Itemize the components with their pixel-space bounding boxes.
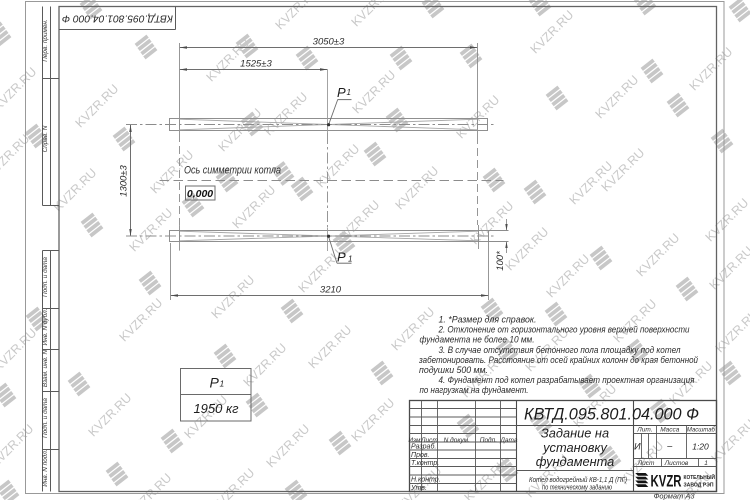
svg-text:100*: 100*: [495, 251, 506, 271]
svg-text:Подп.: Подп.: [480, 436, 497, 444]
svg-text:3. В случае отсутствия бетонно: 3. В случае отсутствия бетонного пола пл…: [439, 345, 681, 355]
svg-text:KVZR.RU: KVZR.RU: [209, 273, 258, 322]
svg-text:KVZR.RU: KVZR.RU: [389, 305, 438, 354]
svg-text:КОТЕЛЬНЫЙ: КОТЕЛЬНЫЙ: [684, 473, 716, 481]
svg-text:KVZR.RU: KVZR.RU: [454, 93, 503, 142]
svg-text:Лист: Лист: [637, 460, 655, 467]
svg-text:KVZR.RU: KVZR.RU: [117, 296, 166, 345]
svg-text:Подп. и дата: Подп. и дата: [41, 398, 49, 438]
svg-text:N докум.: N докум.: [444, 436, 470, 444]
svg-text:KVZR.RU: KVZR.RU: [86, 391, 135, 440]
svg-text:KVZR.RU: KVZR.RU: [349, 0, 398, 29]
svg-text:1300±3: 1300±3: [119, 164, 130, 196]
svg-text:фундамента не более 10 мм.: фундамента не более 10 мм.: [420, 335, 535, 345]
svg-text:1: 1: [348, 255, 352, 264]
svg-text:1: 1: [704, 460, 708, 467]
svg-text:Ось симметрии котла: Ось симметрии котла: [184, 165, 281, 177]
svg-text:KVZR.RU: KVZR.RU: [314, 142, 363, 191]
svg-text:KVZR.RU: KVZR.RU: [241, 341, 290, 390]
svg-text:KVZR.RU: KVZR.RU: [503, 225, 552, 274]
svg-text:KVZR.RU: KVZR.RU: [611, 297, 660, 346]
svg-text:KVZR.RU: KVZR.RU: [126, 471, 175, 500]
svg-text:KVZR.RU: KVZR.RU: [127, 206, 176, 255]
svg-text:KVZR.RU: KVZR.RU: [306, 323, 355, 372]
svg-text:KVZR.RU: KVZR.RU: [0, 326, 39, 375]
svg-text:KVZR.RU: KVZR.RU: [528, 8, 577, 57]
svg-text:KVZR.RU: KVZR.RU: [262, 90, 311, 139]
svg-text:KVZR.RU: KVZR.RU: [713, 307, 750, 356]
svg-text:KVZR.RU: KVZR.RU: [544, 252, 593, 301]
svg-text:ЗАВОД РЭП: ЗАВОД РЭП: [684, 483, 714, 489]
svg-text:1950 кг: 1950 кг: [193, 401, 239, 416]
svg-text:Н.контр.: Н.контр.: [411, 477, 441, 484]
svg-text:Утв.: Утв.: [410, 485, 427, 492]
svg-text:KVZR.RU: KVZR.RU: [709, 417, 750, 466]
svg-text:Разраб.: Разраб.: [411, 443, 436, 451]
svg-text:КВТД.095.801.04.000 Ф: КВТД.095.801.04.000 Ф: [524, 406, 699, 424]
svg-text:Задание на: Задание на: [541, 426, 609, 441]
svg-text:фундамента: фундамента: [536, 454, 615, 469]
svg-text:3210: 3210: [320, 285, 342, 296]
svg-text:KVZR.RU: KVZR.RU: [468, 199, 517, 248]
svg-text:0,000: 0,000: [187, 188, 213, 200]
svg-text:KVZR.RU: KVZR.RU: [0, 65, 39, 114]
svg-text:KVZR.RU: KVZR.RU: [350, 68, 399, 117]
svg-text:по нагрузкам на фундамент.: по нагрузкам на фундамент.: [420, 385, 529, 395]
svg-text:KVZR.RU: KVZR.RU: [393, 164, 442, 213]
svg-text:Дата: Дата: [499, 437, 518, 444]
svg-text:KVZR.RU: KVZR.RU: [273, 0, 322, 32]
svg-text:KVZR.RU: KVZR.RU: [334, 198, 383, 247]
svg-text:KVZR.RU: KVZR.RU: [703, 196, 750, 245]
svg-text:2. Отклонение от горизонтально: 2. Отклонение от горизонтального уровня …: [438, 325, 690, 335]
svg-text:P: P: [337, 250, 346, 265]
svg-text:P: P: [337, 85, 346, 100]
svg-text:КВТД.095.801.04.000 Ф: КВТД.095.801.04.000 Ф: [62, 12, 173, 24]
svg-text:KVZR.RU: KVZR.RU: [264, 422, 313, 471]
svg-text:по техническому заданию: по техническому заданию: [542, 484, 613, 492]
svg-text:KVZR.RU: KVZR.RU: [51, 166, 100, 215]
svg-text:KVZR.RU: KVZR.RU: [209, 466, 258, 500]
svg-text:1: 1: [347, 88, 351, 97]
svg-text:KVZR.RU: KVZR.RU: [707, 244, 750, 293]
svg-text:И: И: [634, 442, 641, 452]
svg-text:1:20: 1:20: [692, 442, 709, 452]
svg-text:Подп. и дата: Подп. и дата: [41, 257, 49, 297]
svg-text:KVZR.RU: KVZR.RU: [73, 82, 122, 131]
svg-text:Справ. N: Справ. N: [42, 125, 49, 152]
svg-text:KVZR.RU: KVZR.RU: [230, 183, 279, 232]
svg-text:1: 1: [220, 379, 225, 389]
svg-text:KVZR.RU: KVZR.RU: [593, 73, 642, 122]
svg-text:Инв. N подл.: Инв. N подл.: [41, 449, 49, 486]
svg-text:Котел водогрейный КВ-1,1 Д (П: Котел водогрейный КВ-1,1 Д (ПГ): [529, 476, 627, 484]
svg-text:3050±3: 3050±3: [313, 37, 345, 48]
svg-text:забетонировать. Расстояние от: забетонировать. Расстояние от осей крайн…: [418, 355, 698, 365]
svg-text:Т.контр.: Т.контр.: [411, 460, 439, 467]
svg-text:Лит.: Лит.: [636, 426, 652, 433]
svg-text:1525±3: 1525±3: [240, 59, 272, 70]
svg-text:P: P: [210, 375, 220, 391]
svg-text:KVZR.RU: KVZR.RU: [349, 396, 398, 445]
svg-text:1. *Размер для справок.: 1. *Размер для справок.: [439, 315, 537, 325]
svg-text:–: –: [666, 441, 673, 451]
svg-text:Взам. инв. N: Взам. инв. N: [42, 350, 49, 388]
svg-text:Масса: Масса: [660, 426, 680, 433]
svg-text:Формат А3: Формат А3: [653, 492, 695, 500]
svg-text:Листов: Листов: [664, 460, 689, 467]
svg-text:подушки 500 мм.: подушки 500 мм.: [419, 365, 488, 375]
svg-text:Инв. N дубл.: Инв. N дубл.: [41, 309, 49, 346]
svg-text:установку: установку: [542, 440, 608, 455]
svg-text:KVZR.RU: KVZR.RU: [0, 422, 36, 471]
svg-text:Перв. примен.: Перв. примен.: [42, 19, 49, 61]
svg-text:KVZR: KVZR: [651, 473, 682, 491]
svg-text:KVZR.RU: KVZR.RU: [0, 132, 32, 181]
svg-text:4. Фундамент под котел разраба: 4. Фундамент под котел разрабатывает про…: [439, 375, 695, 385]
svg-text:Пров.: Пров.: [411, 452, 430, 459]
svg-text:Масштаб: Масштаб: [687, 427, 716, 433]
svg-text:KVZR.RU: KVZR.RU: [634, 231, 683, 280]
svg-text:KVZR.RU: KVZR.RU: [687, 45, 736, 94]
